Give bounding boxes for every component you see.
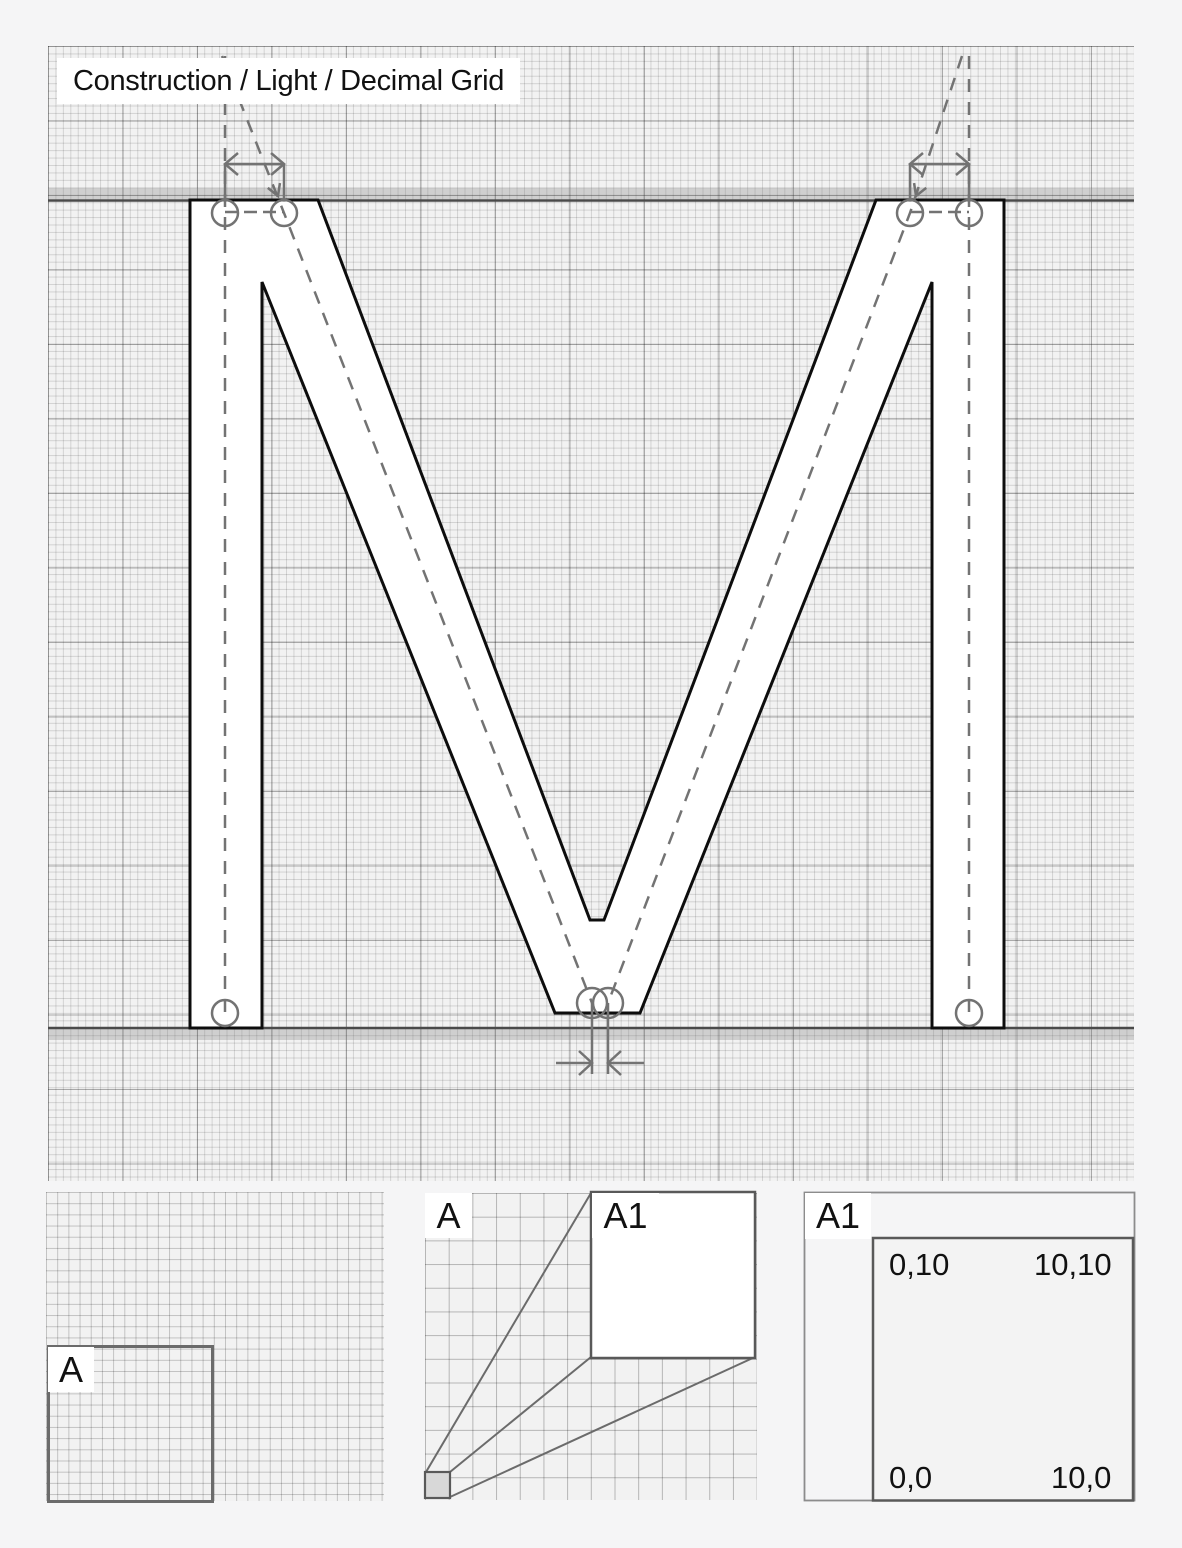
overview-region-label-text: A — [59, 1349, 83, 1391]
coord-top-right: 10,10 — [1034, 1247, 1112, 1283]
letter-m-glyph — [190, 200, 1004, 1028]
overview-region-label: A — [48, 1347, 94, 1392]
zoom-source-label-text: A — [436, 1195, 460, 1237]
zoom-source-label: A — [425, 1193, 472, 1238]
detail-panel-label-text: A1 — [816, 1195, 860, 1237]
cap-height-band — [48, 188, 1134, 199]
coord-top-left: 0,10 — [889, 1247, 949, 1283]
figure-title: Construction / Light / Decimal Grid — [57, 58, 520, 104]
coord-bottom-left: 0,0 — [889, 1460, 932, 1496]
coord-bottom-right: 10,0 — [1051, 1460, 1111, 1496]
zoom-target-label: A1 — [592, 1193, 659, 1238]
detail-panel-label: A1 — [805, 1193, 871, 1239]
construction-diagram — [0, 0, 1182, 1548]
zoom-source-cell — [425, 1472, 450, 1498]
zoom-connector-line — [450, 1357, 591, 1472]
figure-title-text: Construction / Light / Decimal Grid — [73, 65, 504, 98]
zoom-connector-line — [450, 1357, 755, 1497]
zoom-target-label-text: A1 — [603, 1195, 647, 1237]
